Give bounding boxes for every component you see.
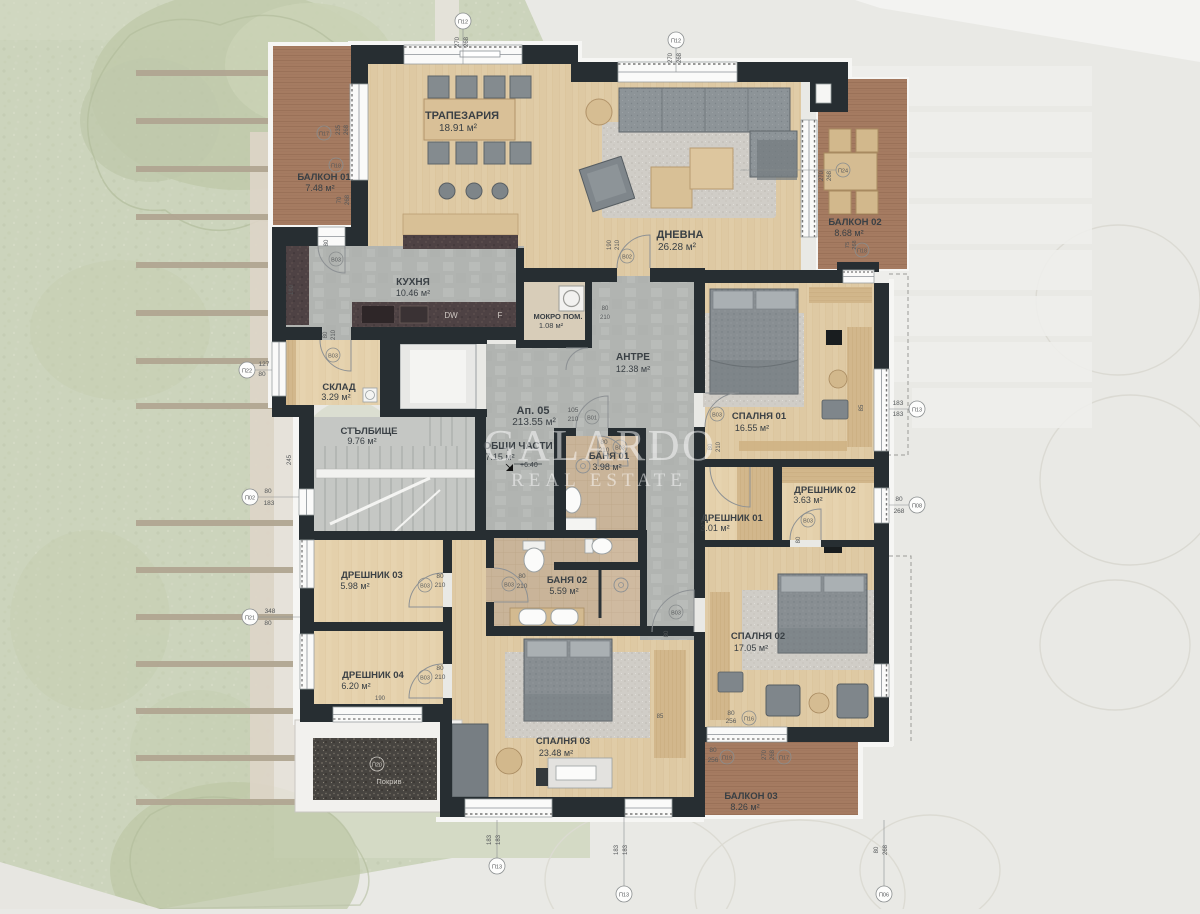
svg-text:270: 270 (455, 36, 461, 47)
svg-text:210: 210 (615, 239, 621, 250)
svg-text:8.26 м²: 8.26 м² (730, 802, 759, 812)
svg-text:268: 268 (464, 36, 470, 47)
svg-text:Покрив: Покрив (376, 777, 401, 786)
svg-text:6.20 м²: 6.20 м² (341, 681, 370, 691)
svg-text:П24: П24 (838, 169, 848, 175)
svg-text:5.98 м²: 5.98 м² (340, 581, 369, 591)
svg-text:B03: B03 (420, 676, 430, 682)
svg-text:8.68 м²: 8.68 м² (834, 228, 863, 238)
svg-text:П19: П19 (722, 756, 732, 762)
svg-text:80: 80 (518, 573, 526, 580)
svg-text:80: 80 (264, 488, 272, 495)
svg-text:БАЛКОН 01: БАЛКОН 01 (297, 172, 351, 183)
svg-text:23.48 м²: 23.48 м² (539, 748, 573, 758)
svg-text:190: 190 (375, 696, 386, 702)
svg-text:183: 183 (264, 500, 275, 507)
svg-text:B02: B02 (622, 255, 632, 261)
svg-text:П22: П22 (242, 369, 252, 375)
svg-text:B03: B03 (420, 584, 430, 590)
svg-text:АНТРЕ: АНТРЕ (616, 352, 650, 363)
svg-text:210: 210 (435, 674, 446, 681)
svg-text:210: 210 (517, 583, 528, 590)
svg-text:256: 256 (726, 718, 737, 725)
svg-text:245: 245 (287, 454, 293, 465)
svg-text:9.76 м²: 9.76 м² (347, 436, 376, 446)
svg-text:GALARDO: GALARDO (484, 421, 717, 470)
svg-text:85: 85 (859, 404, 865, 411)
svg-text:B03: B03 (331, 258, 341, 264)
svg-text:80: 80 (664, 630, 670, 637)
svg-text:ДНЕВНА: ДНЕВНА (657, 229, 704, 241)
svg-text:80: 80 (436, 573, 444, 580)
svg-text:B03: B03 (671, 611, 681, 617)
svg-text:БАНЯ 02: БАНЯ 02 (547, 575, 587, 586)
svg-text:КУХНЯ: КУХНЯ (396, 277, 430, 288)
svg-text:183: 183 (893, 411, 904, 418)
svg-text:ДРЕШНИК 03: ДРЕШНИК 03 (341, 570, 403, 581)
svg-text:270: 270 (762, 749, 768, 760)
svg-text:1.08 м²: 1.08 м² (539, 321, 564, 330)
svg-text:270: 270 (668, 52, 674, 63)
svg-text:П13: П13 (492, 865, 502, 871)
svg-text:B03: B03 (712, 413, 722, 419)
svg-text:7.48 м²: 7.48 м² (305, 183, 334, 193)
svg-text:СПАЛНЯ 01: СПАЛНЯ 01 (732, 411, 787, 422)
svg-text:70: 70 (337, 196, 343, 203)
svg-text:П16: П16 (744, 717, 754, 723)
svg-text:П21: П21 (245, 616, 255, 622)
svg-text:183: 183 (893, 400, 904, 407)
svg-text:80: 80 (324, 239, 330, 246)
svg-text:268: 268 (344, 124, 350, 135)
svg-text:B03: B03 (504, 583, 514, 589)
svg-text:П02: П02 (245, 496, 255, 502)
svg-text:80: 80 (258, 371, 266, 378)
svg-text:268: 268 (345, 194, 351, 205)
svg-text:B03: B03 (803, 519, 813, 525)
svg-text:127: 127 (259, 361, 270, 368)
svg-text:3.29 м²: 3.29 м² (321, 392, 350, 402)
svg-text:МОКРО ПОМ.: МОКРО ПОМ. (533, 312, 582, 321)
svg-text:П17: П17 (319, 132, 329, 138)
svg-text:СПАЛНЯ 03: СПАЛНЯ 03 (536, 736, 590, 747)
svg-text:БАЛКОН 02: БАЛКОН 02 (828, 217, 881, 228)
svg-text:REAL ESTATE: REAL ESTATE (511, 470, 687, 491)
svg-text:268: 268 (852, 240, 858, 249)
svg-text:12.38 м²: 12.38 м² (616, 364, 650, 374)
svg-text:DW: DW (444, 311, 458, 320)
svg-text:268: 268 (770, 749, 776, 760)
svg-text:П06: П06 (879, 893, 889, 899)
svg-text:П13: П13 (619, 893, 629, 899)
svg-text:268: 268 (883, 844, 889, 855)
svg-text:235: 235 (336, 124, 342, 135)
svg-text:П12: П12 (458, 20, 468, 26)
svg-text:85: 85 (657, 714, 664, 720)
svg-text:80: 80 (436, 665, 444, 672)
svg-text:256: 256 (708, 757, 719, 764)
svg-text:18.91 м²: 18.91 м² (439, 123, 478, 134)
svg-text:П13: П13 (912, 408, 922, 414)
svg-text:80: 80 (796, 536, 802, 543)
svg-text:26.28 м²: 26.28 м² (658, 242, 697, 253)
svg-text:80: 80 (874, 846, 880, 853)
svg-text:80: 80 (264, 620, 272, 627)
svg-text:80: 80 (602, 306, 609, 312)
svg-text:П12: П12 (671, 39, 681, 45)
svg-text:75: 75 (845, 242, 851, 248)
svg-text:190: 190 (607, 239, 613, 250)
svg-text:5.59 м²: 5.59 м² (549, 586, 578, 596)
svg-text:3.01 м²: 3.01 м² (700, 523, 729, 533)
svg-text:80: 80 (895, 496, 903, 503)
svg-text:П20: П20 (372, 763, 382, 769)
svg-text:ДРЕШНИК 04: ДРЕШНИК 04 (342, 670, 404, 681)
svg-text:П17: П17 (779, 756, 789, 762)
svg-text:183: 183 (487, 834, 493, 845)
svg-text:183: 183 (623, 844, 629, 855)
svg-text:3.63 м²: 3.63 м² (793, 495, 822, 505)
svg-text:348: 348 (265, 608, 276, 615)
svg-text:268: 268 (894, 508, 905, 515)
svg-text:105: 105 (568, 407, 579, 414)
svg-text:190: 190 (289, 284, 295, 295)
svg-text:183: 183 (496, 834, 502, 845)
svg-text:80: 80 (709, 747, 717, 754)
svg-text:B03: B03 (328, 354, 338, 360)
svg-text:270: 270 (819, 170, 825, 181)
svg-text:16.55 м²: 16.55 м² (735, 423, 769, 433)
svg-text:Ап. 05: Ап. 05 (517, 405, 550, 417)
svg-text:П08: П08 (912, 504, 922, 510)
svg-text:F: F (498, 311, 503, 320)
svg-text:268: 268 (827, 170, 833, 181)
svg-text:210: 210 (435, 582, 446, 589)
svg-text:ТРАПЕЗАРИЯ: ТРАПЕЗАРИЯ (425, 110, 499, 122)
svg-text:183: 183 (614, 844, 620, 855)
svg-text:17.05 м²: 17.05 м² (734, 643, 768, 653)
svg-text:210: 210 (716, 441, 722, 452)
svg-text:210: 210 (600, 315, 611, 321)
svg-text:80: 80 (727, 710, 735, 717)
svg-text:БАЛКОН 03: БАЛКОН 03 (724, 791, 777, 802)
svg-text:П18: П18 (857, 249, 867, 255)
svg-text:268: 268 (677, 52, 683, 63)
svg-text:210: 210 (331, 329, 337, 340)
svg-text:80: 80 (323, 331, 329, 338)
svg-text:СПАЛНЯ 02: СПАЛНЯ 02 (731, 631, 785, 642)
svg-text:10.46 м²: 10.46 м² (396, 288, 430, 298)
svg-text:П18: П18 (331, 164, 341, 170)
